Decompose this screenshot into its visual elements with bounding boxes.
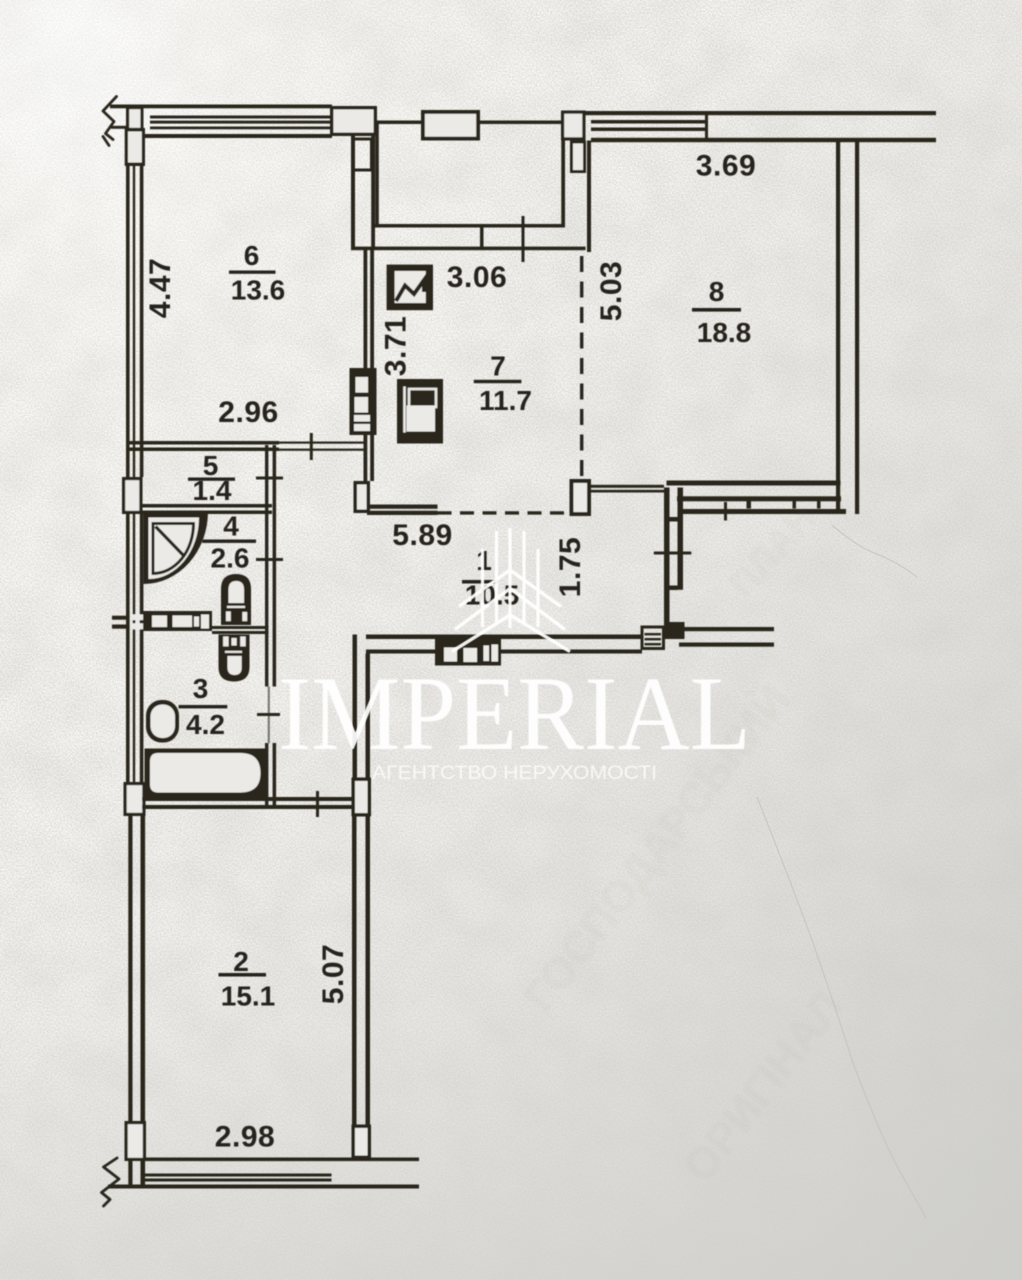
svg-text:3.69: 3.69 (696, 150, 756, 183)
svg-text:13.6: 13.6 (231, 275, 286, 306)
svg-text:6: 6 (244, 240, 260, 271)
svg-text:3: 3 (193, 673, 209, 704)
svg-text:IMPERIAL: IMPERIAL (278, 655, 751, 772)
svg-text:5.89: 5.89 (392, 519, 452, 552)
svg-text:11.7: 11.7 (479, 385, 532, 416)
svg-text:АГЕНТСТВО НЕРУХОМОСТІ: АГЕНТСТВО НЕРУХОМОСТІ (372, 762, 657, 784)
svg-text:7: 7 (490, 351, 506, 382)
svg-text:2: 2 (233, 946, 249, 977)
svg-text:4.47: 4.47 (144, 258, 177, 318)
svg-text:15.1: 15.1 (221, 981, 276, 1012)
svg-text:1.4: 1.4 (193, 475, 232, 506)
svg-text:3.71: 3.71 (380, 316, 413, 376)
svg-text:3.06: 3.06 (447, 261, 507, 294)
svg-text:5.07: 5.07 (317, 944, 350, 1004)
svg-text:5.03: 5.03 (595, 261, 628, 321)
svg-text:4: 4 (223, 511, 239, 542)
svg-text:18.8: 18.8 (697, 317, 752, 348)
svg-text:4.2: 4.2 (186, 709, 225, 740)
svg-text:2.98: 2.98 (215, 1121, 275, 1154)
svg-text:2.96: 2.96 (218, 396, 278, 429)
svg-text:1.75: 1.75 (554, 537, 587, 597)
svg-text:8: 8 (709, 276, 725, 307)
svg-text:2.6: 2.6 (211, 543, 250, 574)
